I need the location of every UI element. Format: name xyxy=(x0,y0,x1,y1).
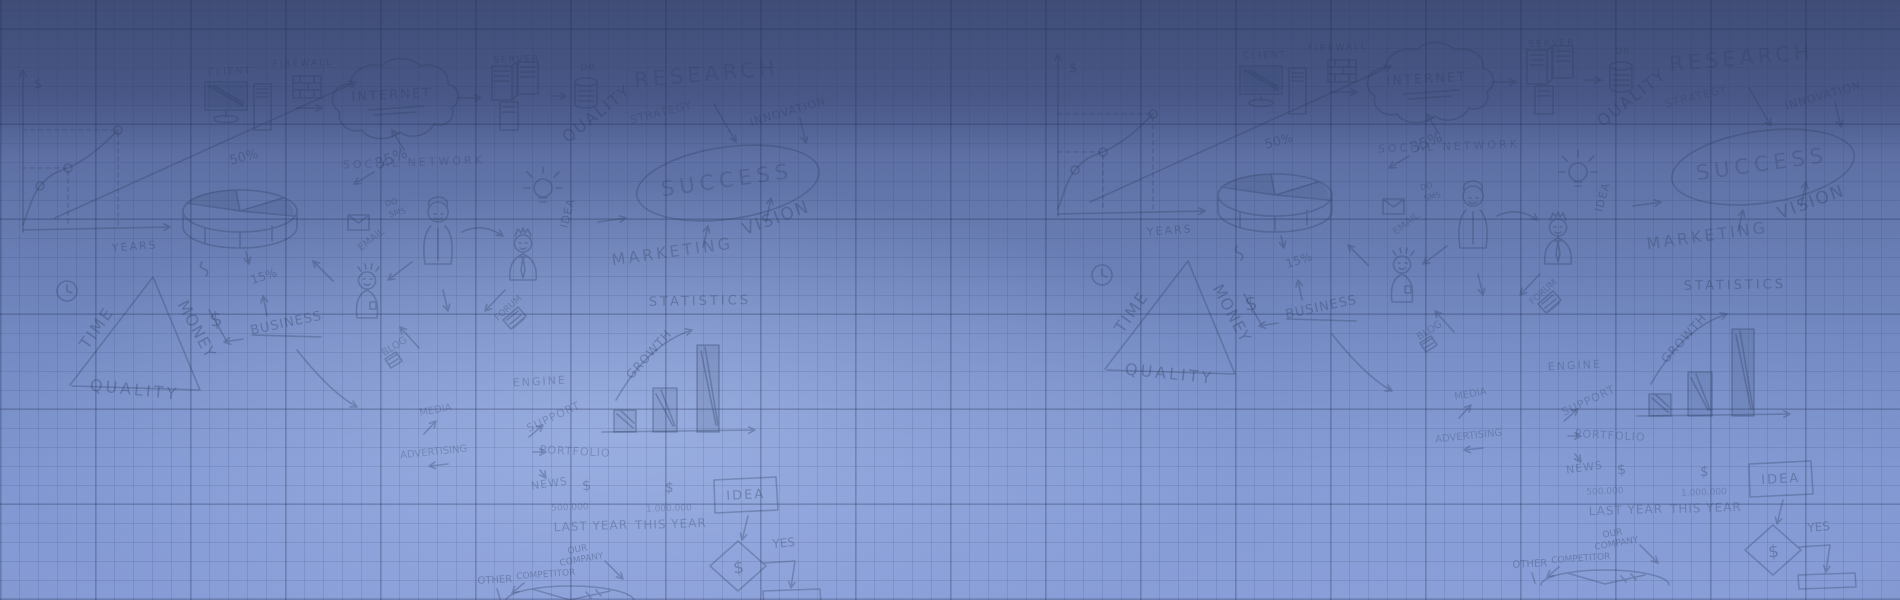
doodle-word-success: SUCCESS xyxy=(660,159,795,201)
bar-fill-3 xyxy=(697,345,719,432)
arrow-doodle xyxy=(224,338,243,344)
doodle-word-yes: YES xyxy=(1806,519,1831,535)
doodle-word-: $ xyxy=(1699,464,1709,481)
arrow-doodle xyxy=(598,216,626,222)
lightbulb-doodle xyxy=(1559,151,1597,186)
bar-fill-1 xyxy=(614,410,636,432)
internet-underline xyxy=(1403,90,1459,99)
server-racks-doodle xyxy=(1527,46,1573,114)
arrow-doodle xyxy=(605,561,623,579)
doodle-word-500-000: 500.000 xyxy=(1586,486,1624,497)
boy-figure-doodle xyxy=(356,264,379,318)
doodle-word-engine: ENGINE xyxy=(1547,358,1602,374)
doodle-word-: $ xyxy=(664,480,674,497)
arrow-doodle xyxy=(1259,322,1278,328)
doodle-word-business: BUSINESS xyxy=(249,309,323,339)
doodle-word-growth: GROWTH xyxy=(623,327,674,382)
arrow-doodle xyxy=(23,224,170,231)
doodle-word-social-network: SOCIAL NETWORK xyxy=(1378,138,1520,156)
internet-underline xyxy=(368,106,424,115)
arrow-doodle xyxy=(1464,446,1483,453)
doodle-word-sms: SMS xyxy=(388,206,407,219)
arrow-doodle xyxy=(1279,236,1285,248)
doodle-word-business: BUSINESS xyxy=(1284,293,1358,323)
arrow-doodle xyxy=(462,228,503,236)
monitor-screen-fill xyxy=(1242,68,1280,92)
doodle-word-: $ xyxy=(1069,61,1077,76)
arrow-doodle xyxy=(1332,334,1392,391)
doodle-word-firewall: FIREWALL xyxy=(1308,42,1369,54)
arrow-doodle xyxy=(551,93,566,99)
doodle-word-strategy: STRATEGY xyxy=(629,99,694,127)
doodle-word-news: NEWS xyxy=(530,475,568,493)
arrow-doodle xyxy=(1633,200,1661,206)
doodle-word-idea: IDEA xyxy=(726,487,766,504)
doodle-art-layer: $YEARS35%50%CLIENTFIREWALLINTERNETSERVER… xyxy=(0,0,1900,600)
doodle-word-yes: YES xyxy=(771,535,796,551)
company-pie-doodle xyxy=(1541,570,1669,585)
doodle-word-social-network: SOCIAL NETWORK xyxy=(343,154,485,172)
doodle-word-news: NEWS xyxy=(1565,459,1603,477)
doodle-word-: $ xyxy=(1617,462,1627,479)
arrow-doodle xyxy=(1423,246,1447,264)
doodle-word-: $ xyxy=(732,558,745,579)
doodle-word-portfolio: PORTFOLIO xyxy=(1574,427,1645,444)
doodle-word-years: YEARS xyxy=(1145,222,1193,238)
doodle-word-: $ xyxy=(34,77,42,92)
doodle-word-client: CLIENT xyxy=(208,66,252,78)
doodle-word-: $ xyxy=(1243,290,1259,316)
doodle-word-time: TIME xyxy=(1110,287,1153,337)
boy-figure-doodle xyxy=(1391,248,1414,302)
arrow-doodle xyxy=(1055,54,1061,216)
doodle-word-advertising: ADVERTISING xyxy=(400,444,468,462)
arrow-doodle xyxy=(313,261,333,281)
doodle-word-15: 15% xyxy=(249,265,279,287)
doodle-word-last-year: LAST YEAR xyxy=(1588,502,1663,519)
arrow-doodle xyxy=(740,516,748,540)
doodle-word-1-000-000: 1.000.000 xyxy=(1681,487,1727,499)
arrow-doodle xyxy=(261,296,267,316)
doodle-word-competitor: COMPETITOR xyxy=(516,568,576,582)
doodle-word-time: TIME xyxy=(75,303,118,353)
arrow-doodle xyxy=(497,589,500,599)
doodle-set-right: $YEARS35%50%CLIENTFIREWALLINTERNETSERVER… xyxy=(1055,38,1863,589)
doodle-word-idea: IDEA xyxy=(1592,181,1612,214)
company-pie-doodle xyxy=(506,586,634,600)
email-envelope-doodle xyxy=(348,215,369,230)
arrow-doodle xyxy=(1586,77,1601,83)
doodle-word-vision: VISION xyxy=(1775,181,1848,224)
doodle-word-research: RESEARCH xyxy=(633,56,779,93)
doodle-word-this-year: THIS YEAR xyxy=(634,516,707,533)
arrow-doodle xyxy=(388,262,412,280)
doodle-word-: $ xyxy=(208,306,224,332)
doodle-word-advertising: ADVERTISING xyxy=(1435,428,1503,446)
doodle-word-db: DB xyxy=(580,63,595,73)
doodle-word-vision: VISION xyxy=(740,197,813,240)
bar-fill-2 xyxy=(653,388,677,432)
arrow-doodle xyxy=(764,561,795,588)
server-racks-doodle xyxy=(492,62,538,130)
doodle-word-internet: INTERNET xyxy=(1386,70,1467,89)
doodle-word-do: DO xyxy=(384,197,398,209)
doodle-word-statistics: STATISTICS xyxy=(649,293,751,310)
doodle-word-marketing: MARKETING xyxy=(1645,218,1769,254)
doodle-word-years: YEARS xyxy=(110,238,158,254)
firewall-doodle xyxy=(1328,60,1356,82)
doodle-word-server: SERVER xyxy=(493,54,541,66)
arrow-doodle xyxy=(1459,405,1471,418)
clock-doodle xyxy=(57,281,77,301)
doodle-word-client: CLIENT xyxy=(1243,50,1287,62)
doodle-word-media: MEDIA xyxy=(1454,386,1488,402)
doodle-word-50: 50% xyxy=(1263,131,1295,153)
doodle-word-idea: IDEA xyxy=(1761,471,1801,488)
doodle-word-quality: QUALITY xyxy=(89,375,180,403)
doodle-word-last-year: LAST YEAR xyxy=(553,518,628,535)
doodle-word-db: DB xyxy=(1615,47,1630,57)
doodle-word-statistics: STATISTICS xyxy=(1684,277,1786,294)
crowned-man-figure-doodle xyxy=(510,228,536,280)
doodle-word-500-000: 500.000 xyxy=(551,502,589,513)
doodle-word-innovation: INNOVATION xyxy=(749,95,828,129)
doodle-word-marketing: MARKETING xyxy=(610,234,734,270)
result-box-doodle xyxy=(1798,573,1856,589)
doodle-word-innovation: INNOVATION xyxy=(1784,79,1863,113)
bar-fill-2 xyxy=(1688,372,1712,416)
monitor-screen-fill xyxy=(207,84,245,108)
arrow-doodle xyxy=(1640,545,1658,563)
arrow-doodle xyxy=(354,172,374,184)
arrow-doodle xyxy=(714,104,736,142)
result-box-doodle xyxy=(763,589,821,600)
doodle-word-1-000-000: 1.000.000 xyxy=(646,503,692,515)
doodle-set-left: $YEARS35%50%CLIENTFIREWALLINTERNETSERVER… xyxy=(20,54,828,600)
clock-doodle xyxy=(1092,265,1112,285)
doodle-word-15: 15% xyxy=(1284,249,1314,271)
arrow-doodle xyxy=(244,252,250,264)
arrow-doodle xyxy=(1478,274,1485,295)
bar-fill-3 xyxy=(1732,329,1754,416)
arrow-doodle xyxy=(20,70,26,232)
doodle-word-support: SUPPORT xyxy=(1560,383,1618,419)
doodle-word-competitor: COMPETITOR xyxy=(1551,552,1611,566)
pc-tower-doodle xyxy=(1289,68,1306,114)
arrow-doodle xyxy=(1835,102,1843,127)
lightbulb-doodle xyxy=(524,167,562,202)
doodle-word-other: OTHER xyxy=(477,574,512,587)
pc-tower-doodle xyxy=(254,84,271,130)
doodle-word-sms: SMS xyxy=(1423,190,1442,203)
doodle-word-portfolio: PORTFOLIO xyxy=(539,443,610,460)
doodle-word-support: SUPPORT xyxy=(525,399,583,435)
doodle-word-success: SUCCESS xyxy=(1695,143,1830,185)
arrow-doodle xyxy=(1348,245,1368,265)
doodle-word-internet: INTERNET xyxy=(351,86,432,105)
doodle-svg: $YEARS35%50%CLIENTFIREWALLINTERNETSERVER… xyxy=(0,0,1900,600)
doodle-word-research: RESEARCH xyxy=(1668,40,1814,77)
arrow-doodle xyxy=(458,95,481,101)
arrow-doodle xyxy=(424,421,436,434)
doodle-word-strategy: STRATEGY xyxy=(1664,83,1729,111)
arrow-doodle xyxy=(1532,573,1535,583)
doodle-word-engine: ENGINE xyxy=(512,374,567,390)
arrow-doodle xyxy=(429,462,448,469)
doodle-banner: $YEARS35%50%CLIENTFIREWALLINTERNETSERVER… xyxy=(0,0,1900,600)
arrow-doodle xyxy=(1775,500,1783,524)
doodle-word-growth: GROWTH xyxy=(1658,311,1709,366)
arrow-doodle xyxy=(1497,212,1538,220)
arrow-doodle xyxy=(1389,156,1409,168)
doodle-word-do: DO xyxy=(1419,181,1433,193)
arrow-doodle xyxy=(1296,280,1302,300)
doodle-word-media: MEDIA xyxy=(419,402,453,418)
bar-fill-1 xyxy=(1649,394,1671,416)
doodle-word-firewall: FIREWALL xyxy=(273,58,334,70)
doodle-word-: $ xyxy=(1767,542,1780,563)
doodle-word-quality: QUALITY xyxy=(1124,359,1215,387)
arrow-doodle xyxy=(1749,88,1771,126)
arrow-doodle xyxy=(1493,79,1516,85)
doodle-word-other: OTHER xyxy=(1512,558,1547,571)
arrow-doodle xyxy=(1058,208,1205,215)
firewall-doodle xyxy=(293,76,321,98)
arrow-doodle xyxy=(1799,545,1830,572)
doodle-word-: $ xyxy=(582,478,592,495)
email-envelope-doodle xyxy=(1383,199,1404,214)
doodle-word-this-year: THIS YEAR xyxy=(1669,500,1742,517)
doodle-word-50: 50% xyxy=(228,147,260,169)
arrow-doodle xyxy=(443,290,450,311)
doodle-word-server: SERVER xyxy=(1528,38,1576,50)
woman-figure-doodle xyxy=(1459,181,1487,248)
doodle-word-idea: IDEA xyxy=(557,197,577,230)
arrow-doodle xyxy=(297,350,357,407)
woman-figure-doodle xyxy=(424,197,452,264)
arrow-doodle xyxy=(800,118,808,143)
crowned-man-figure-doodle xyxy=(1545,212,1571,264)
